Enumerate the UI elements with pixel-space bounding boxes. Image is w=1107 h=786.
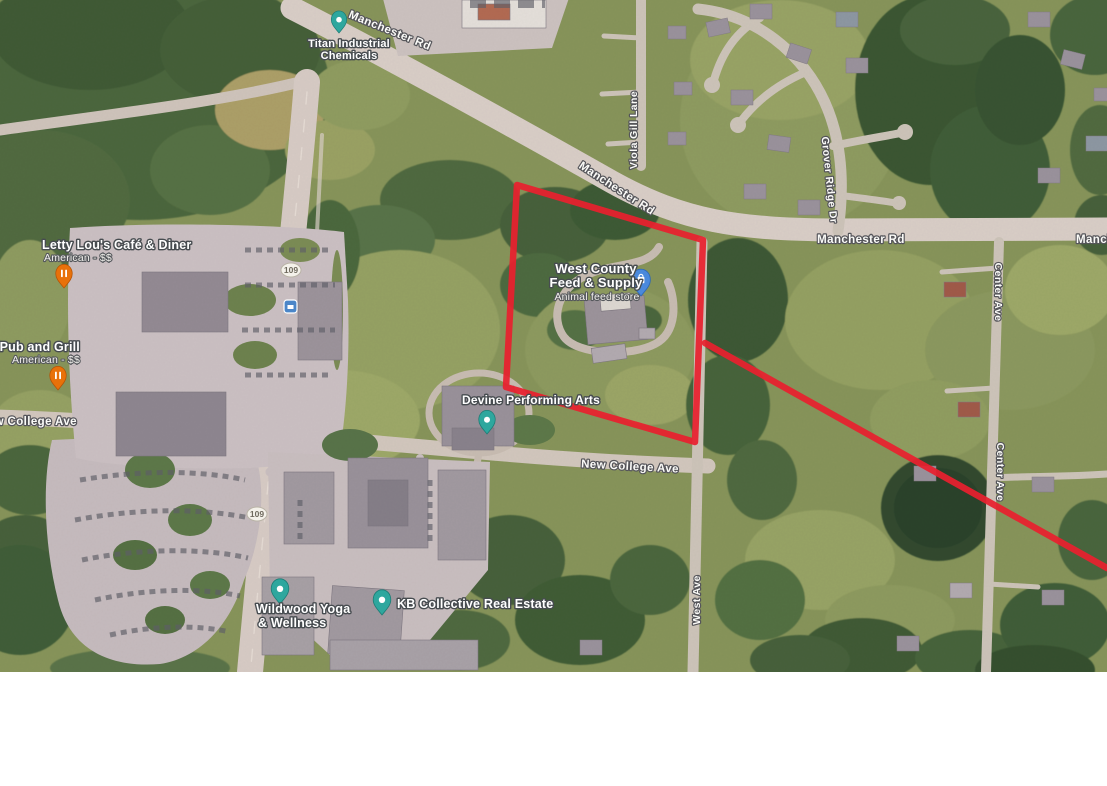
road-label-center-ave-south: Center Ave xyxy=(994,443,1006,502)
letty-label-name[interactable]: Letty Lou's Café & Diner xyxy=(42,238,191,252)
road-label-west-ave: West Ave xyxy=(691,575,703,625)
yoga-label-line2[interactable]: & Wellness xyxy=(258,616,326,630)
headline-band: GOOD NEWS WILDWOOD xyxy=(0,672,1107,786)
transit-icon[interactable] xyxy=(284,300,297,313)
route-109-text: 109 xyxy=(284,265,298,275)
pub-label-name[interactable]: d Pub and Grill xyxy=(0,340,80,354)
road-label-viola-gill: Viola Gill Lane xyxy=(628,91,640,169)
road-label-manchester-east: Manchester Rd xyxy=(817,234,905,246)
scanned-flyer-page: Manchester Rd Manchester Rd Manchester R… xyxy=(0,0,1107,786)
feed-label-line2[interactable]: Feed & Supply xyxy=(550,275,643,290)
letty-label-meta: American - $$ xyxy=(44,252,112,264)
pub-label-meta: American - $$ xyxy=(12,354,80,366)
titan-label-line2[interactable]: Chemicals xyxy=(321,50,378,62)
yoga-label-line1[interactable]: Wildwood Yoga xyxy=(256,602,351,616)
titan-label-line1[interactable]: Titan Industrial xyxy=(308,38,390,50)
road-label-center-ave-north: Center Ave xyxy=(992,263,1004,322)
devine-label[interactable]: Devine Performing Arts xyxy=(462,393,600,407)
feed-label-meta: Animal feed store xyxy=(554,291,639,303)
feed-label-line1[interactable]: West County xyxy=(555,261,637,276)
satellite-map[interactable]: Manchester Rd Manchester Rd Manchester R… xyxy=(0,0,1107,672)
road-label-manchester-edge: Manchester Rd xyxy=(1076,234,1107,246)
road-label-new-college-west: New College Ave xyxy=(0,416,77,428)
route-109-text: 109 xyxy=(250,509,264,519)
kb-label[interactable]: KB Collective Real Estate xyxy=(397,597,553,611)
scan-grain xyxy=(0,0,1107,672)
